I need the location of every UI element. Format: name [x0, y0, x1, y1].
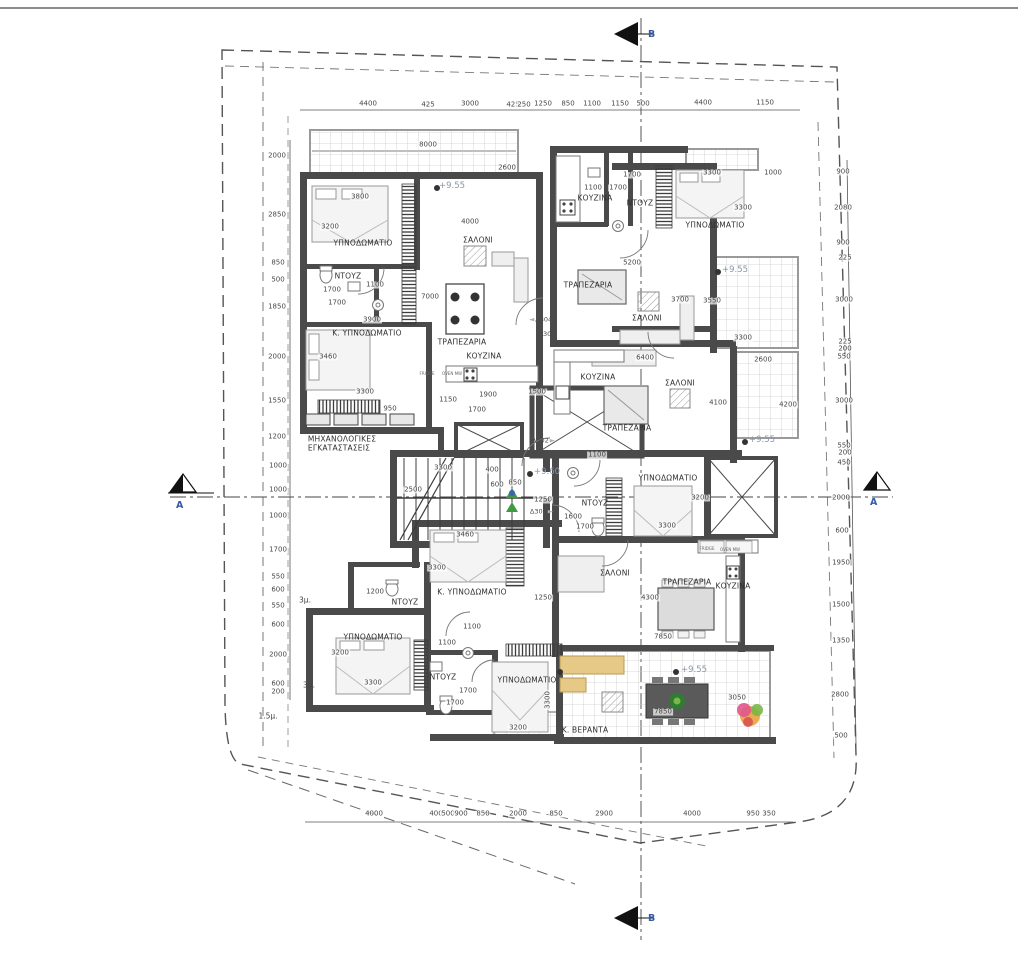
- section-letter-left: A: [176, 500, 183, 511]
- veranda-sofa: [560, 656, 624, 674]
- section-marker-bottom-icon: [614, 906, 638, 930]
- section-letter-bottom: B: [648, 913, 655, 924]
- floor-plan-drawing: [0, 0, 1018, 960]
- rugs: [464, 246, 690, 712]
- mechanical-units: [306, 414, 414, 425]
- section-letter-top: B: [648, 29, 655, 40]
- section-letter-right: A: [870, 497, 877, 508]
- floor-plan-canvas: ΥΠΝΟΔΩΜΑΤΙΟΣΑΛΟΝΙΝΤΟΥΖΚ. ΥΠΝΟΔΩΜΑΤΙΟΤΡΑΠ…: [0, 0, 1018, 960]
- section-marker-top-icon: [614, 22, 638, 46]
